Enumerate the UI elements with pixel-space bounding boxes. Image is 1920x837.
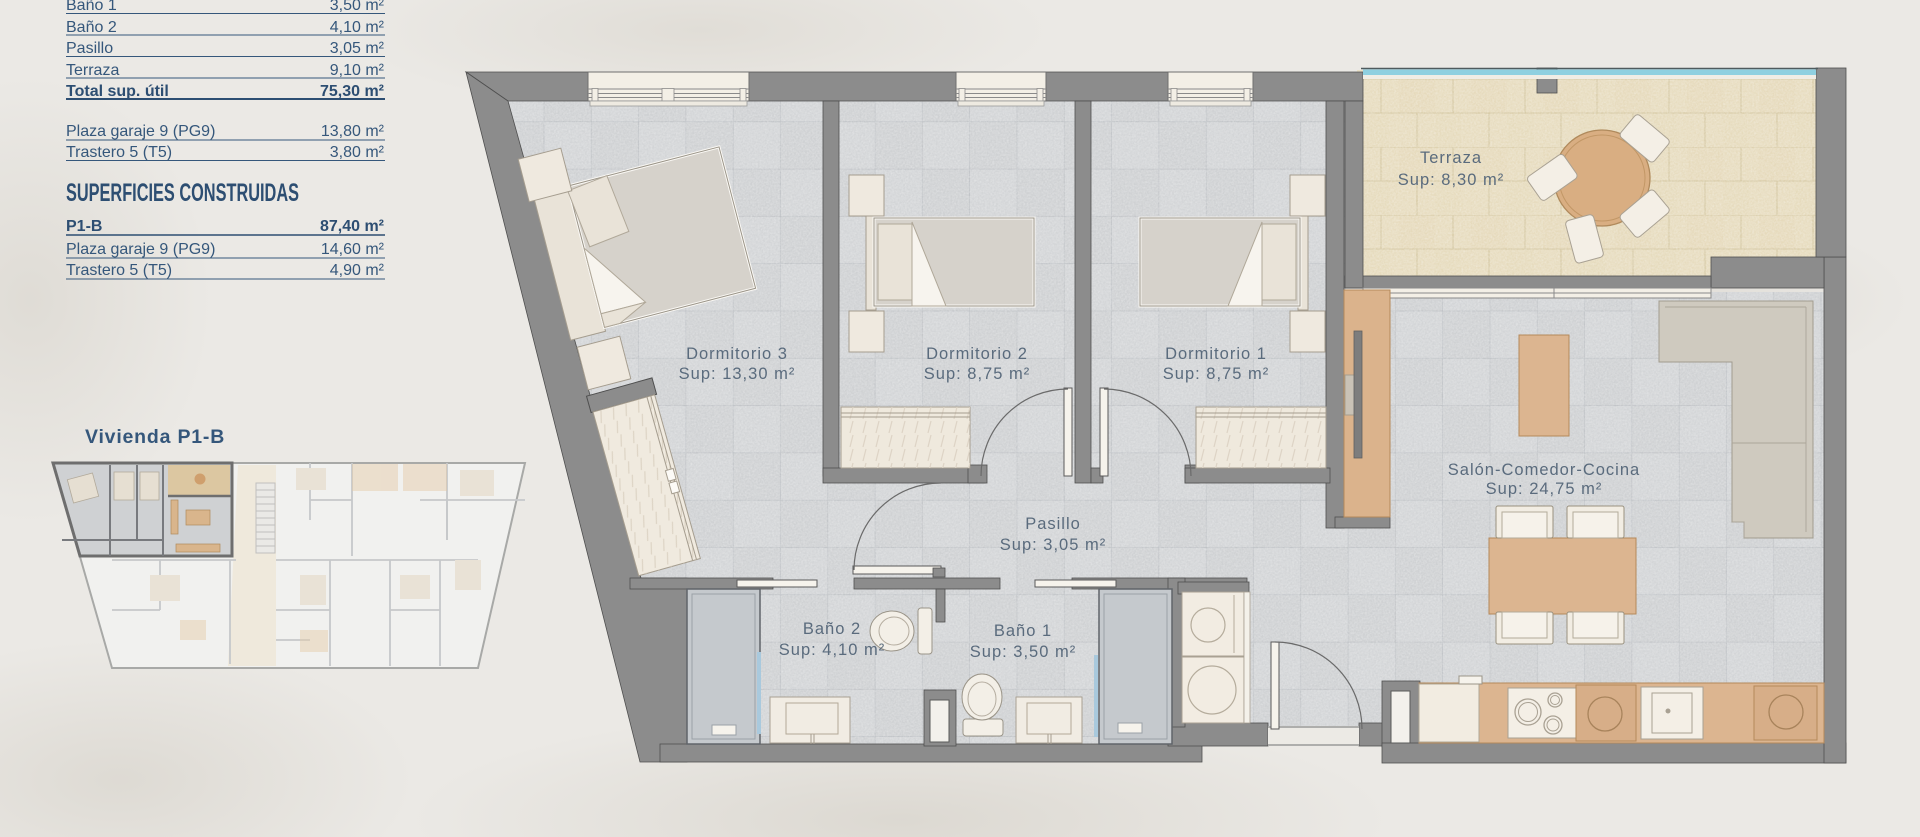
svg-text:SUPERFICIES CONSTRUIDAS: SUPERFICIES CONSTRUIDAS	[66, 179, 299, 207]
svg-text:Vivienda P1-B: Vivienda P1-B	[85, 426, 225, 448]
svg-text:14,60 m²: 14,60 m²	[321, 241, 385, 258]
svg-text:Terraza: Terraza	[1420, 149, 1482, 167]
svg-text:Salón-Comedor-Cocina: Salón-Comedor-Cocina	[1448, 461, 1640, 479]
svg-text:Sup: 24,75 m²: Sup: 24,75 m²	[1486, 480, 1603, 498]
svg-text:Dormitorio 2: Dormitorio 2	[926, 345, 1028, 363]
svg-text:Sup: 13,30 m²: Sup: 13,30 m²	[679, 365, 796, 383]
svg-text:Sup: 3,50 m²: Sup: 3,50 m²	[970, 643, 1076, 661]
svg-text:Dormitorio 3: Dormitorio 3	[686, 345, 788, 363]
svg-text:4,90 m²: 4,90 m²	[330, 262, 385, 279]
svg-text:Sup: 4,10 m²: Sup: 4,10 m²	[779, 641, 885, 659]
svg-text:Plaza garaje 9 (PG9): Plaza garaje 9 (PG9)	[66, 123, 215, 140]
svg-text:Baño 2: Baño 2	[803, 620, 861, 638]
svg-text:Sup: 8,30 m²: Sup: 8,30 m²	[1398, 171, 1504, 189]
svg-text:Dormitorio 1: Dormitorio 1	[1165, 345, 1267, 363]
svg-text:Sup: 8,75 m²: Sup: 8,75 m²	[1163, 365, 1269, 383]
svg-text:4,10 m²: 4,10 m²	[330, 19, 385, 36]
svg-text:Sup: 8,75 m²: Sup: 8,75 m²	[924, 365, 1030, 383]
svg-text:13,80 m²: 13,80 m²	[321, 123, 385, 140]
svg-text:3,50 m²: 3,50 m²	[330, 0, 385, 14]
svg-text:3,80 m²: 3,80 m²	[330, 144, 385, 161]
svg-text:Baño 1: Baño 1	[66, 0, 117, 14]
svg-text:Pasillo: Pasillo	[1025, 515, 1081, 533]
svg-text:87,40 m²: 87,40 m²	[320, 218, 384, 235]
svg-text:Pasillo: Pasillo	[66, 40, 113, 57]
svg-text:Baño 2: Baño 2	[66, 19, 117, 36]
svg-text:Total sup. útil: Total sup. útil	[66, 83, 169, 100]
svg-text:Plaza garaje 9 (PG9): Plaza garaje 9 (PG9)	[66, 241, 215, 258]
svg-text:Terraza: Terraza	[66, 62, 119, 79]
svg-text:Trastero 5 (T5): Trastero 5 (T5)	[66, 144, 172, 161]
svg-text:75,30 m²: 75,30 m²	[320, 83, 384, 100]
svg-text:9,10 m²: 9,10 m²	[330, 62, 385, 79]
svg-text:3,05 m²: 3,05 m²	[330, 40, 385, 57]
svg-text:Sup: 3,05 m²: Sup: 3,05 m²	[1000, 536, 1106, 554]
svg-text:Trastero 5 (T5): Trastero 5 (T5)	[66, 262, 172, 279]
svg-text:Baño 1: Baño 1	[994, 622, 1052, 640]
svg-text:P1-B: P1-B	[66, 218, 102, 235]
